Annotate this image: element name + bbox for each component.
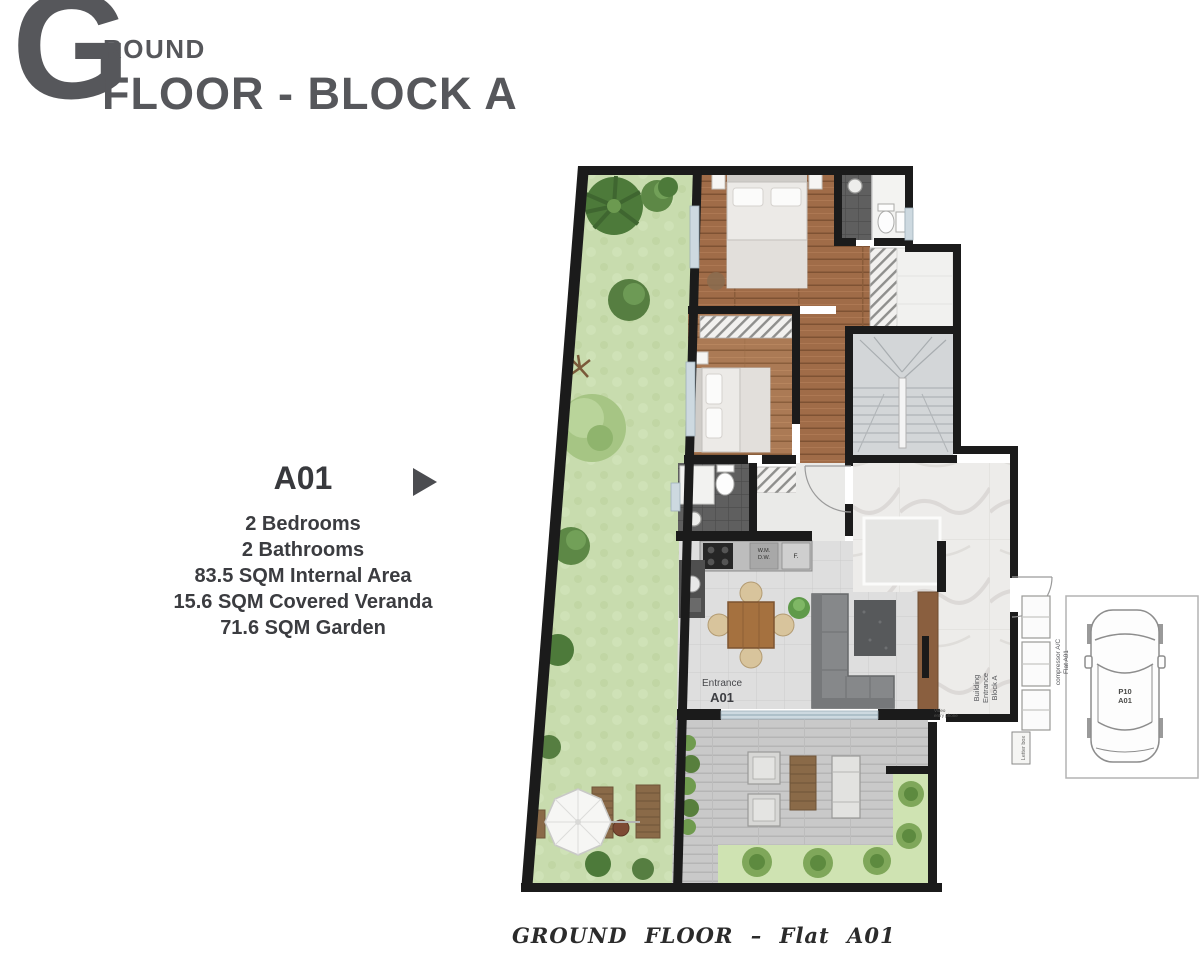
corridor-floor (800, 314, 845, 463)
car-icon (1085, 610, 1165, 762)
ac-compressors (1022, 596, 1050, 730)
brochure-page: G ROUND FLOOR - BLOCK A A01 2 Bedrooms 2… (0, 0, 1200, 954)
parking-space (1066, 596, 1198, 778)
wardrobe-hatch (757, 467, 798, 493)
toilet-icon (878, 204, 894, 233)
outdoor-armchair (748, 752, 780, 784)
closet (897, 248, 953, 330)
entrance-label: Entrance (702, 678, 742, 689)
fridge-label: F. (793, 553, 798, 560)
outdoor-lounger (832, 756, 860, 818)
tv-unit (918, 592, 938, 716)
svg-text:entry phone: entry phone (934, 713, 958, 718)
svg-text:Flat A01: Flat A01 (1063, 650, 1070, 674)
wardrobe-hatch (870, 248, 897, 330)
elevator (864, 518, 940, 584)
outdoor-armchair (748, 794, 780, 826)
washing-machine-label: W.M. (758, 548, 771, 554)
entrance-label-code: A01 (710, 690, 734, 705)
svg-text:Entrance: Entrance (981, 673, 990, 703)
bed-master (712, 174, 822, 288)
shower-head-icon (848, 179, 862, 193)
plan-caption: GROUND FLOOR – Flat A01 (512, 923, 932, 948)
outdoor-table (790, 756, 816, 810)
toilet-icon (716, 465, 734, 495)
sink-icon (896, 212, 905, 232)
wardrobe-hatch (700, 316, 792, 338)
sun-lounger-icon (636, 785, 660, 838)
letter-box-label: Letter box (1021, 736, 1027, 761)
staircase (853, 334, 953, 455)
rug (854, 600, 896, 656)
svg-text:A01: A01 (1118, 696, 1132, 705)
dishwasher-label: D.W. (758, 555, 770, 561)
svg-text:Block A: Block A (990, 675, 999, 700)
compressor-label: compressor A/C (1055, 639, 1062, 686)
floor-plan: Entrance A01 Building Entrance Block A c… (0, 0, 1200, 954)
parking-label: P10 (1118, 687, 1131, 696)
building-entrance-label: Building (972, 675, 981, 702)
entrance-hall-floor (796, 463, 845, 541)
